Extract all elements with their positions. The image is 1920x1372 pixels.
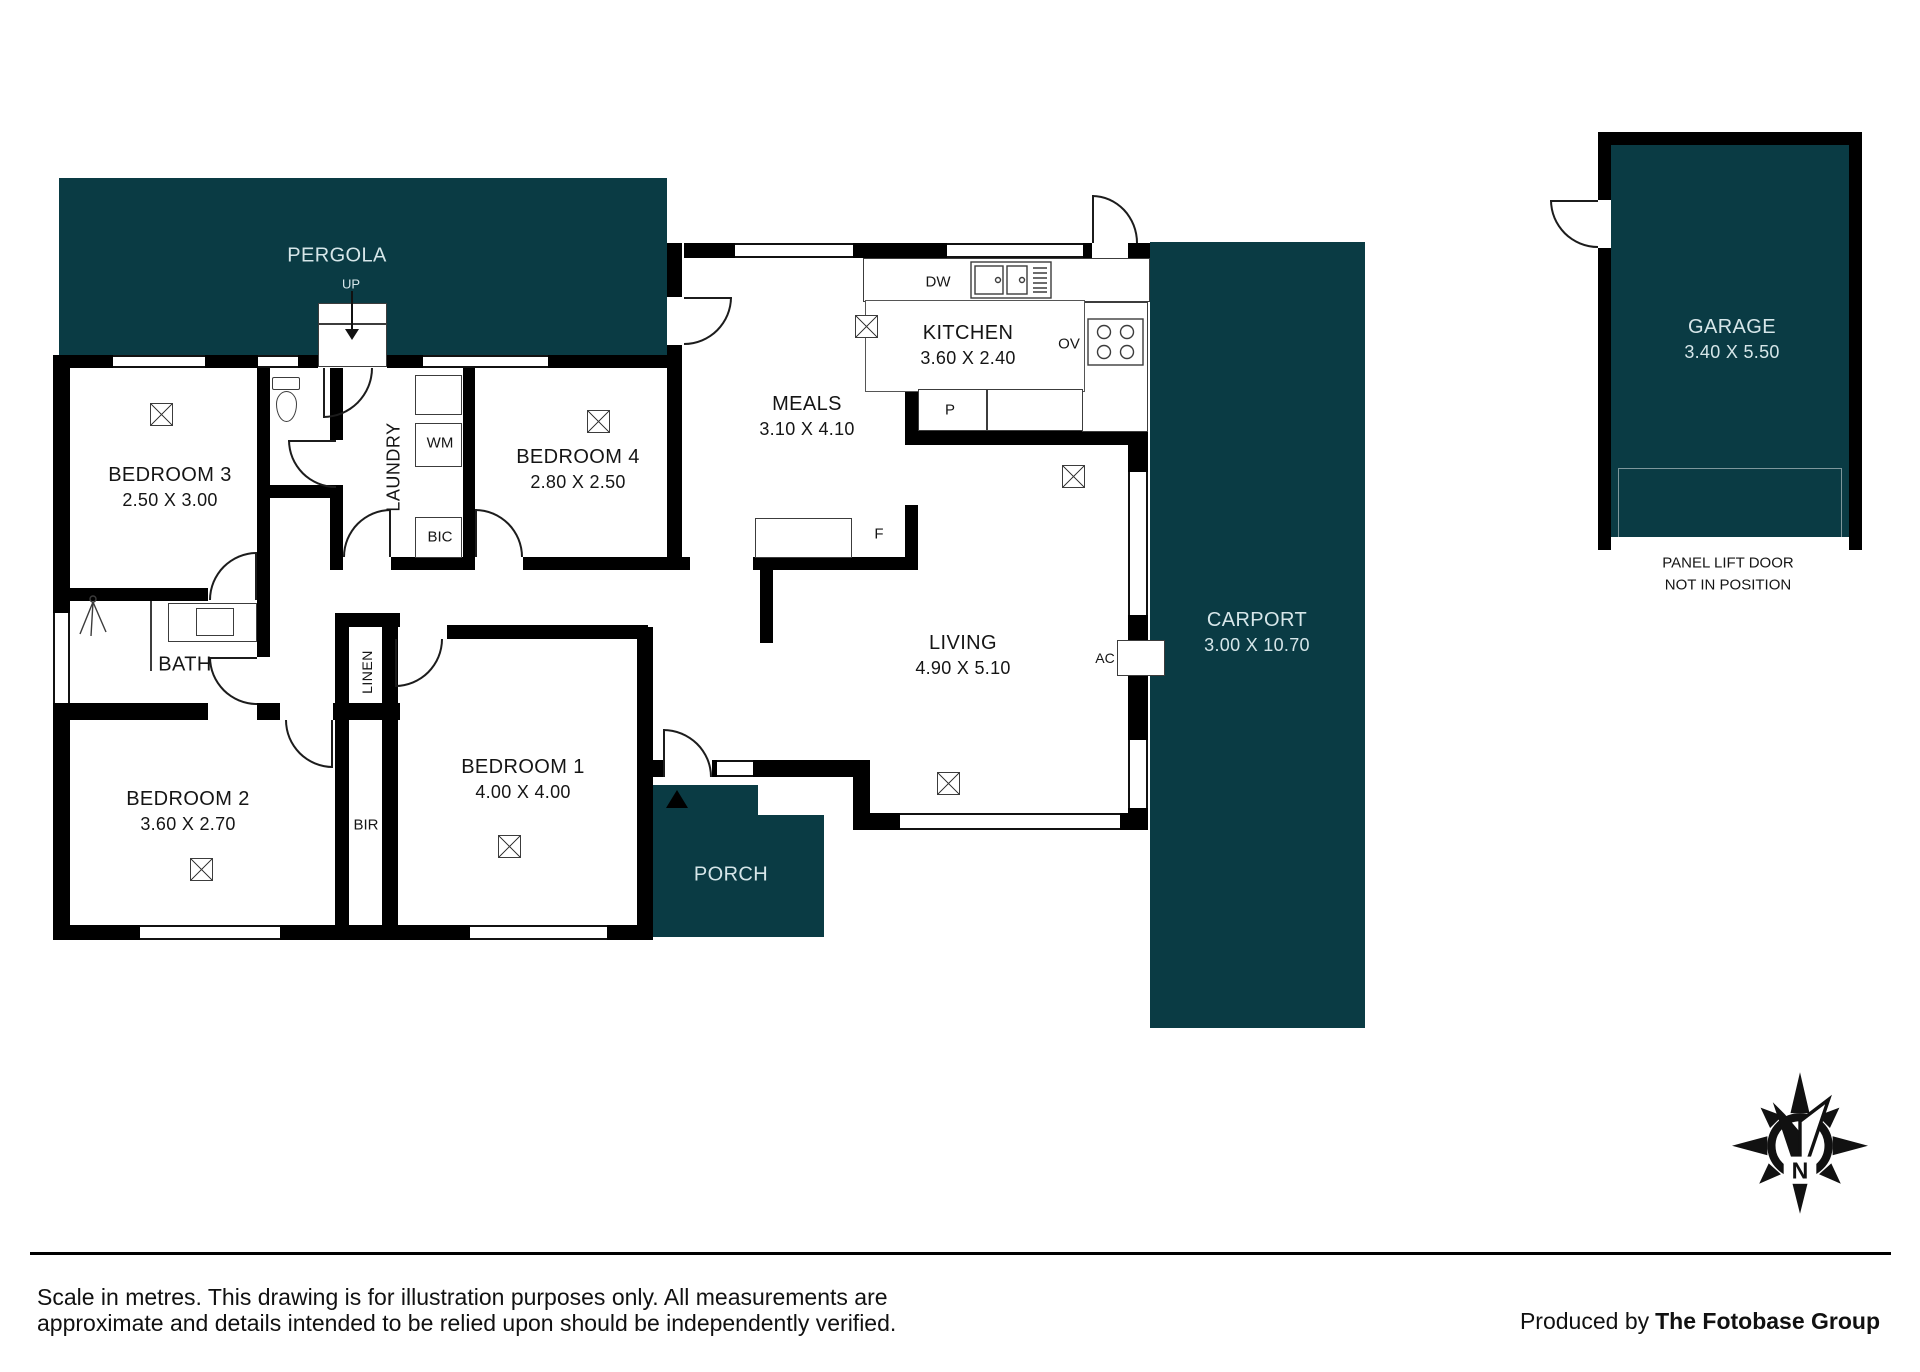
wall-bed4-right <box>667 345 682 570</box>
window-wc <box>258 355 298 368</box>
door-bath <box>209 657 257 705</box>
ac-label: AC <box>1095 650 1114 666</box>
wall <box>867 813 900 830</box>
wall <box>280 925 470 940</box>
fan-icon-meals <box>855 315 878 338</box>
vanity-basin <box>196 608 234 636</box>
toilet-cistern <box>272 377 300 390</box>
room-label-porch: PORCH <box>694 863 768 888</box>
laundry-label: LAUNDRY <box>384 422 405 511</box>
door-wc <box>288 440 336 488</box>
door-entry-hall <box>684 297 732 345</box>
cooktop-icon <box>1087 318 1144 366</box>
fan-icon-bedroom4 <box>587 410 610 433</box>
sink-icon <box>970 261 1052 299</box>
room-label-bedroom1: BEDROOM 14.00 X 4.00 <box>461 755 585 805</box>
wall-linen-bottom <box>333 703 400 720</box>
footer-divider <box>30 1252 1891 1255</box>
wall <box>330 557 343 570</box>
garage-door-gap <box>1611 537 1849 550</box>
wall-pantry-stub <box>905 388 918 433</box>
entry-marker <box>666 790 688 808</box>
wall-hall-stub <box>760 570 773 643</box>
shower-screen <box>150 601 152 671</box>
shower-icon <box>76 594 128 640</box>
wall-laundry-bed4 <box>463 368 475 568</box>
room-label-living: LIVING4.90 X 5.10 <box>915 631 1010 681</box>
window-bedroom3 <box>113 355 205 368</box>
door-laundry <box>343 509 391 557</box>
toilet-bowl <box>276 391 297 422</box>
north-compass-icon: N <box>1732 1072 1868 1214</box>
kitchen-bench-lower <box>987 389 1083 431</box>
wm-label: WM <box>427 435 454 452</box>
panel-lift-door-note-2: NOT IN POSITION <box>1665 577 1791 594</box>
wall-fridge-nook <box>753 557 917 570</box>
wall <box>53 925 140 940</box>
fan-icon-bedroom3 <box>150 403 173 426</box>
wall-kitchen-living <box>905 430 1133 445</box>
fridge-label: F <box>874 526 883 543</box>
wall <box>753 760 870 777</box>
stair-up-label: UP <box>342 277 360 292</box>
room-label-meals: MEALS3.10 X 4.10 <box>759 392 854 442</box>
fridge-space <box>755 518 852 558</box>
wall <box>684 243 735 258</box>
room-label-kitchen: KITCHEN3.60 X 2.40 <box>920 321 1015 371</box>
room-label-garage: GARAGE3.40 X 5.50 <box>1684 315 1779 365</box>
panel-lift-door-note-1: PANEL LIFT DOOR <box>1662 555 1793 572</box>
door-pergola-hall <box>323 368 373 418</box>
window-kitchen <box>947 243 1083 258</box>
room-label-carport: CARPORT3.00 X 10.70 <box>1204 608 1310 658</box>
window-bedroom1 <box>470 925 607 940</box>
disclaimer-text: Scale in metres. This drawing is for ill… <box>37 1284 896 1336</box>
dw-label: DW <box>926 274 951 291</box>
room-label-pergola: PERGOLA <box>287 244 387 269</box>
fan-icon-living-2 <box>937 772 960 795</box>
wall <box>1128 615 1148 640</box>
room-label-bath: BATH <box>158 653 211 678</box>
window-front <box>717 760 753 777</box>
wall-bed4-bottom <box>523 557 690 570</box>
window-meals <box>735 243 853 258</box>
linen-label: LINEN <box>359 650 375 694</box>
window-bath <box>53 613 70 703</box>
room-label-bedroom2: BEDROOM 23.60 X 2.70 <box>126 787 250 837</box>
wall <box>387 355 423 368</box>
wall-stub <box>905 505 918 570</box>
door-bedroom2 <box>285 720 333 768</box>
wall <box>298 355 318 368</box>
garage-door-opening <box>1598 200 1611 248</box>
fan-icon-bedroom1 <box>498 835 521 858</box>
wall-bed1-right <box>637 627 653 940</box>
wall <box>257 703 280 720</box>
wall-bed3-wc <box>257 368 270 600</box>
ov-label: OV <box>1058 336 1080 353</box>
wall <box>205 355 258 368</box>
stair-arrow-shaft <box>351 291 353 331</box>
wall-bed1-top <box>447 625 648 639</box>
window-living-bottom <box>900 813 1120 830</box>
door-bedroom4 <box>475 509 523 557</box>
wall <box>853 243 947 258</box>
door-kitchen-external <box>1092 195 1138 243</box>
door-bedroom1 <box>395 639 443 687</box>
wall <box>1128 675 1148 740</box>
garage-door-arc <box>1550 200 1598 248</box>
pantry-label: P <box>945 402 955 419</box>
window-bedroom4 <box>423 355 548 368</box>
bir-label: BIR <box>353 817 378 834</box>
wall <box>1120 813 1148 830</box>
floorplan-canvas: PERGOLA UP BEDROOM 32.50 X 3.00 BEDROOM … <box>0 0 1920 1372</box>
panel-lift-door-outline <box>1618 468 1842 538</box>
door-bedroom3 <box>209 552 257 600</box>
wall-entry-upper <box>667 243 682 297</box>
wall <box>1083 243 1092 258</box>
stair-arrow-head <box>345 329 359 340</box>
wall <box>391 557 475 570</box>
window-bedroom2 <box>140 925 280 940</box>
wall-bed2-right <box>335 613 349 940</box>
room-label-bedroom4: BEDROOM 42.80 X 2.50 <box>516 445 640 495</box>
wall-bath-right <box>257 588 270 657</box>
room-label-bedroom3: BEDROOM 32.50 X 3.00 <box>108 463 232 513</box>
window-living-1 <box>1128 472 1148 615</box>
produced-by-prefix: Produced by <box>1520 1308 1649 1334</box>
wall-wc-laundry-lower <box>330 488 343 557</box>
brand-name: The Fotobase Group <box>1655 1308 1880 1334</box>
window-living-2 <box>1128 740 1148 808</box>
wall-bath-bottom <box>53 703 208 720</box>
north-label: N <box>1792 1157 1809 1183</box>
laundry-bench <box>415 375 462 415</box>
bic-label: BIC <box>427 529 452 546</box>
wall <box>548 355 672 368</box>
fan-icon-living-1 <box>1062 465 1085 488</box>
ac-unit <box>1117 640 1165 676</box>
fan-icon-bedroom2 <box>190 858 213 881</box>
wall-linen-top <box>335 613 400 627</box>
door-front-entry <box>663 729 712 777</box>
produced-by: Produced byThe Fotobase Group <box>1520 1308 1880 1335</box>
